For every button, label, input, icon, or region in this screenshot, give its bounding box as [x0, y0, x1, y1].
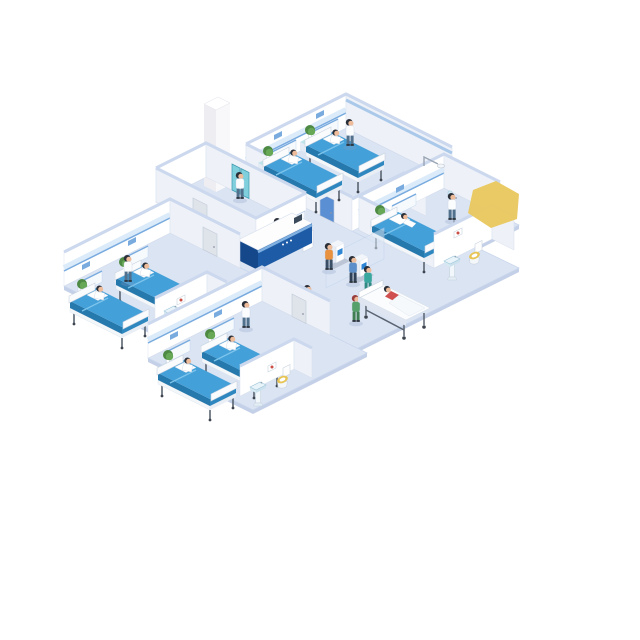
hospital-floor-illustration — [0, 0, 640, 640]
overhead-light — [438, 164, 445, 168]
isometric-scene — [0, 0, 640, 640]
